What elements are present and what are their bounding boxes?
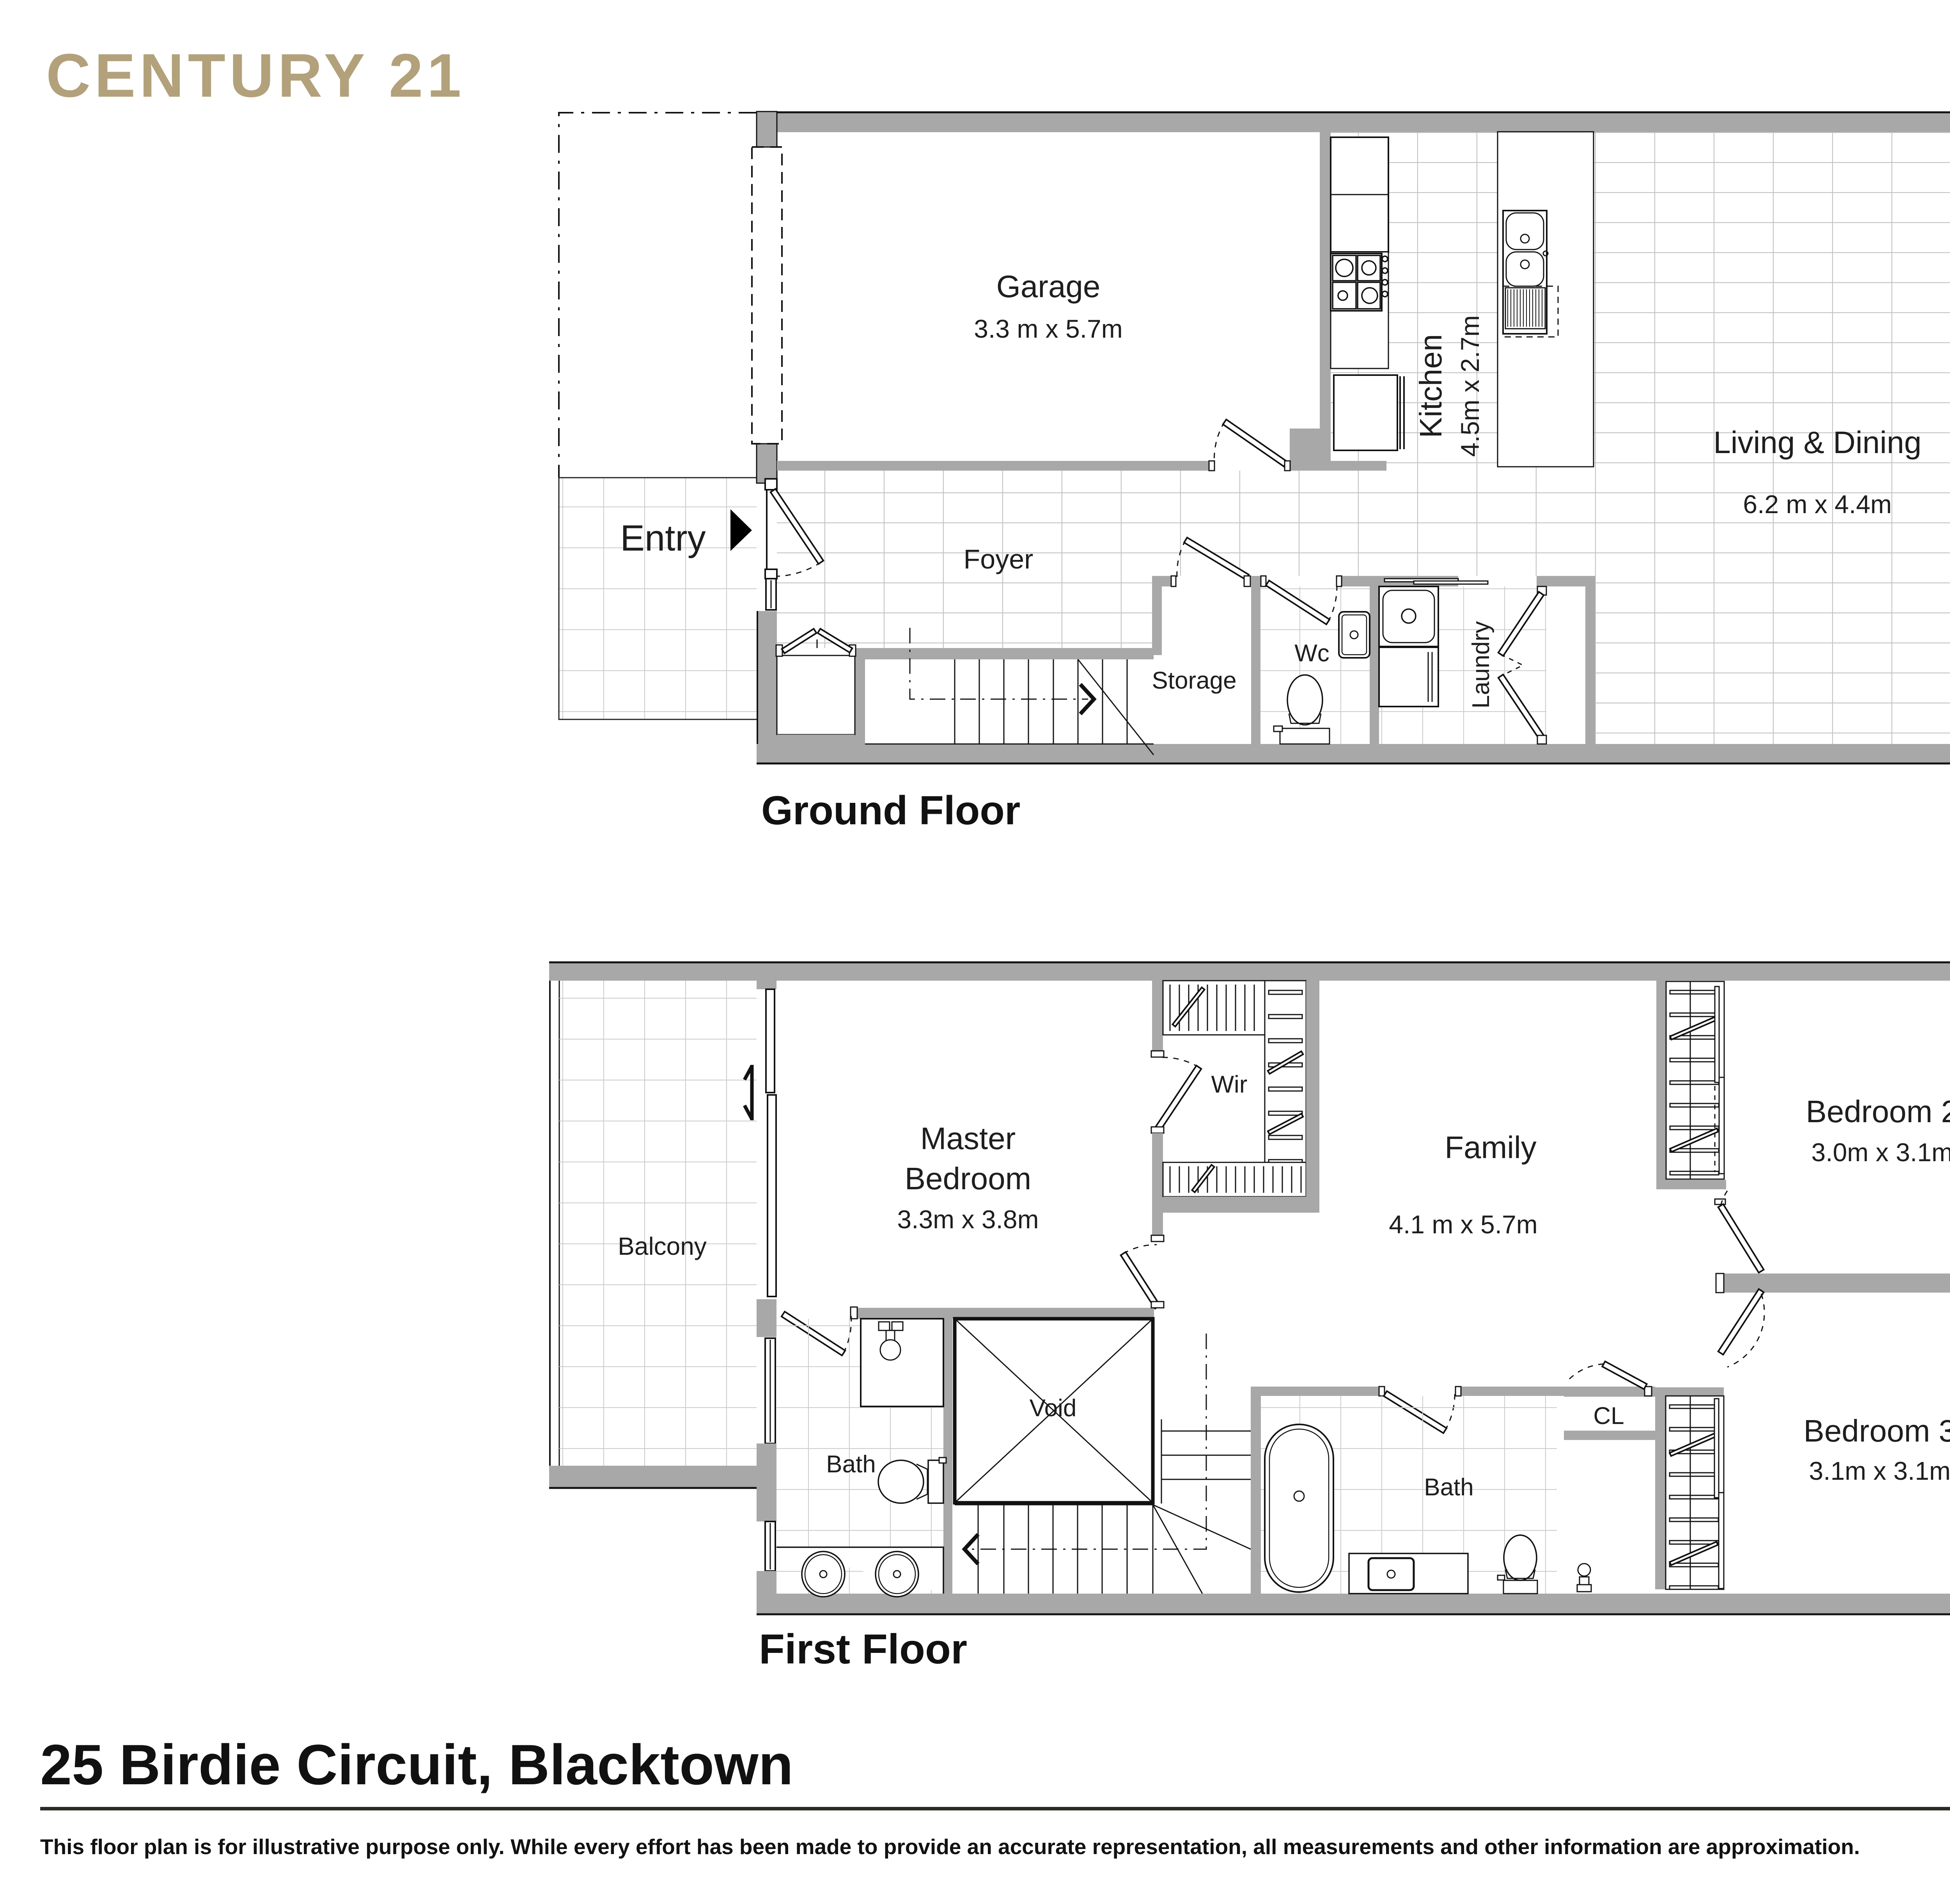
svg-text:Garage: Garage [996, 269, 1101, 304]
svg-text:Storage: Storage [1152, 667, 1236, 694]
svg-text:Bath: Bath [826, 1451, 876, 1478]
svg-text:Ground Floor: Ground Floor [761, 788, 1020, 833]
svg-text:First Floor: First Floor [759, 1625, 967, 1672]
svg-text:25 Birdie Circuit, Blacktown: 25 Birdie Circuit, Blacktown [40, 1733, 793, 1796]
svg-text:3.3 m x 5.7m: 3.3 m x 5.7m [974, 314, 1122, 343]
svg-text:Balcony: Balcony [618, 1232, 707, 1260]
svg-text:3.3m x 3.8m: 3.3m x 3.8m [897, 1205, 1039, 1234]
svg-text:Bath: Bath [1424, 1474, 1474, 1501]
svg-text:Void: Void [1030, 1395, 1077, 1422]
svg-text:Family: Family [1445, 1130, 1537, 1165]
svg-text:Foyer: Foyer [964, 544, 1033, 574]
svg-text:Wc: Wc [1294, 640, 1330, 667]
svg-text:This floor plan is for illustr: This floor plan is for illustrative purp… [40, 1835, 1860, 1859]
svg-text:Laundry: Laundry [1468, 621, 1494, 708]
svg-text:6.2 m x 4.4m: 6.2 m x 4.4m [1743, 490, 1891, 519]
svg-text:CL: CL [1593, 1403, 1624, 1429]
svg-text:4.1 m x 5.7m: 4.1 m x 5.7m [1389, 1210, 1537, 1239]
svg-text:4.5m x 2.7m: 4.5m x 2.7m [1455, 315, 1484, 457]
svg-text:Bedroom 3: Bedroom 3 [1803, 1413, 1950, 1448]
svg-text:Bedroom: Bedroom [905, 1161, 1032, 1196]
svg-text:CENTURY 21: CENTURY 21 [46, 41, 465, 110]
svg-text:Entry: Entry [620, 517, 706, 558]
svg-text:Master: Master [920, 1121, 1016, 1156]
svg-text:Bedroom 2: Bedroom 2 [1806, 1094, 1950, 1129]
svg-text:3.1m x 3.1m: 3.1m x 3.1m [1809, 1456, 1950, 1485]
svg-text:Kitchen: Kitchen [1413, 334, 1448, 438]
svg-text:3.0m x 3.1m: 3.0m x 3.1m [1811, 1138, 1950, 1167]
svg-text:Wir: Wir [1211, 1071, 1248, 1098]
svg-text:Living & Dining: Living & Dining [1713, 425, 1922, 460]
